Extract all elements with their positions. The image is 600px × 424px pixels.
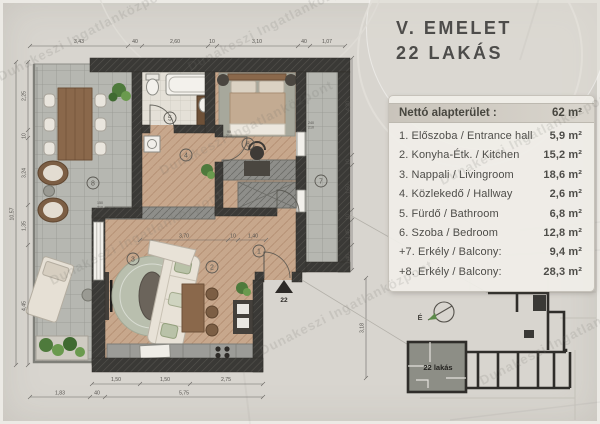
- entrance-arrow-icon: [275, 280, 293, 293]
- room-area: 2,6 m²: [550, 185, 582, 204]
- north-label: É: [417, 313, 422, 322]
- entrance-marker: 22: [275, 280, 293, 304]
- room-label: +7. Erkély / Balcony:: [399, 243, 502, 262]
- svg-text:40: 40: [132, 39, 138, 45]
- svg-text:4,45: 4,45: [22, 301, 28, 311]
- room-label: 5. Fürdő / Bathroom: [399, 205, 499, 224]
- svg-text:3,24: 3,24: [22, 168, 28, 178]
- svg-text:1,40: 1,40: [248, 234, 258, 240]
- room-area: 6,8 m²: [550, 205, 582, 224]
- room-area: 18,6 m²: [543, 166, 582, 185]
- svg-text:1,50: 1,50: [111, 377, 121, 383]
- highlighted-unit: 22 lakás: [408, 342, 466, 392]
- svg-text:5,75: 5,75: [179, 391, 189, 397]
- svg-text:7: 7: [319, 179, 323, 186]
- bar-stool: [206, 288, 218, 300]
- nightstand: [285, 74, 297, 86]
- svg-text:1,45: 1,45: [346, 229, 352, 239]
- svg-text:150: 150: [97, 201, 103, 205]
- table-row: 4. Közlekedő / Hallway 2,6 m²: [389, 185, 594, 204]
- svg-text:10: 10: [230, 234, 236, 240]
- table-row: 5. Fürdő / Bathroom 6,8 m²: [389, 205, 594, 224]
- room-area: 15,2 m²: [543, 146, 582, 165]
- floor-title: V. EMELET: [396, 16, 512, 41]
- dim-left: 2,25 10 3,24 1,35 4,45 10,57: [10, 60, 31, 367]
- svg-text:6: 6: [246, 142, 250, 149]
- area-table-header: Nettó alapterület : 62 m²: [389, 103, 594, 123]
- room-area: 28,3 m²: [543, 263, 582, 282]
- svg-text:2,25: 2,25: [22, 91, 28, 101]
- table-row: 3. Nappali / Livingroom 18,6 m²: [389, 166, 594, 185]
- svg-text:4,20: 4,20: [346, 101, 352, 111]
- svg-text:10: 10: [346, 159, 352, 165]
- sheet-title: V. EMELET 22 LAKÁS: [396, 16, 512, 66]
- dim-bottom-outer: 1,83 40 5,75: [28, 391, 265, 400]
- room-area: 5,9 m²: [550, 127, 582, 146]
- svg-text:1,40: 1,40: [346, 254, 352, 264]
- bar-stool: [206, 306, 218, 318]
- kitchen-counter: [107, 344, 253, 359]
- svg-text:1,07: 1,07: [322, 39, 332, 45]
- net-area-value: 62 m²: [552, 107, 582, 119]
- svg-text:2: 2: [210, 265, 214, 272]
- dining-table: [58, 88, 92, 160]
- svg-text:240: 240: [308, 121, 314, 125]
- balcony-right-floor: [306, 72, 338, 264]
- table-row: 2. Konyha-Étk. / Kitchen 15,2 m²: [389, 146, 594, 165]
- sink: [140, 344, 171, 359]
- net-area-label: Nettó alapterület :: [399, 107, 497, 119]
- north-compass: É: [417, 302, 454, 322]
- svg-text:1,50: 1,50: [160, 377, 170, 383]
- area-table: Nettó alapterület : 62 m² 1. Előszoba / …: [388, 95, 595, 292]
- room-area: 12,8 m²: [543, 224, 582, 243]
- oven-tower: [233, 300, 253, 334]
- dim-right-low: 3,18: [360, 276, 369, 380]
- svg-text:5: 5: [168, 116, 172, 123]
- dim-bottom-inner: 1,50 1,50 2,75: [90, 377, 265, 386]
- balcony-window: [297, 190, 305, 212]
- svg-text:3,70: 3,70: [179, 234, 189, 240]
- svg-text:3,18: 3,18: [360, 323, 366, 333]
- table-row: +8. Erkély / Balcony: 28,3 m²: [389, 263, 594, 282]
- table-row: 6. Szoba / Bedroom 12,8 m²: [389, 224, 594, 243]
- svg-text:1,50: 1,50: [346, 184, 352, 194]
- toilet: [146, 74, 159, 95]
- svg-text:3,43: 3,43: [74, 39, 84, 45]
- svg-text:1: 1: [257, 249, 261, 256]
- entrance-number: 22: [280, 297, 288, 304]
- svg-text:10: 10: [209, 39, 215, 45]
- washing-machine: [144, 136, 160, 152]
- room-label: +8. Erkély / Balcony:: [399, 263, 502, 282]
- room-label: 1. Előszoba / Entrance hall: [399, 127, 533, 146]
- svg-text:210: 210: [226, 134, 232, 138]
- svg-text:1,35: 1,35: [22, 221, 28, 231]
- dim-top: 3,43 40 2,60 10 3,10 40 1,07: [28, 39, 347, 48]
- floorplan-sheet: Dunakeszi Ingatlanközpont Dunakeszi Inga…: [0, 0, 600, 424]
- room-label: 2. Konyha-Étk. / Kitchen: [399, 146, 519, 165]
- svg-text:210: 210: [308, 126, 314, 130]
- svg-text:4: 4: [184, 153, 188, 160]
- planter-plants: [36, 336, 88, 360]
- svg-text:40: 40: [301, 39, 307, 45]
- table-row: 1. Előszoba / Entrance hall 5,9 m²: [389, 127, 594, 146]
- svg-text:10: 10: [22, 133, 28, 139]
- room-label: 3. Nappali / Livingroom: [399, 166, 514, 185]
- svg-text:2,75: 2,75: [221, 377, 231, 383]
- room-area: 9,4 m²: [550, 243, 582, 262]
- table-row: +7. Erkély / Balcony: 9,4 m²: [389, 243, 594, 262]
- sliding-door: [94, 222, 104, 280]
- svg-text:10,57: 10,57: [10, 207, 16, 220]
- svg-text:40: 40: [94, 391, 100, 397]
- unit-label: 22 lakás: [423, 363, 452, 372]
- balcony-window: [297, 132, 305, 156]
- svg-text:8: 8: [91, 181, 95, 188]
- unit-title: 22 LAKÁS: [396, 41, 512, 66]
- svg-text:1,83: 1,83: [55, 391, 65, 397]
- compass-needle-icon: [428, 313, 437, 320]
- room-label: 4. Közlekedő / Hallway: [399, 185, 512, 204]
- kitchen-island: [182, 284, 218, 336]
- bar-stool: [206, 324, 218, 336]
- svg-text:3: 3: [131, 257, 135, 264]
- nightstand: [217, 74, 229, 86]
- svg-text:210: 210: [97, 206, 103, 210]
- room-label: 6. Szoba / Bedroom: [399, 224, 498, 243]
- svg-text:3,10: 3,10: [252, 39, 262, 45]
- svg-text:2,60: 2,60: [170, 39, 180, 45]
